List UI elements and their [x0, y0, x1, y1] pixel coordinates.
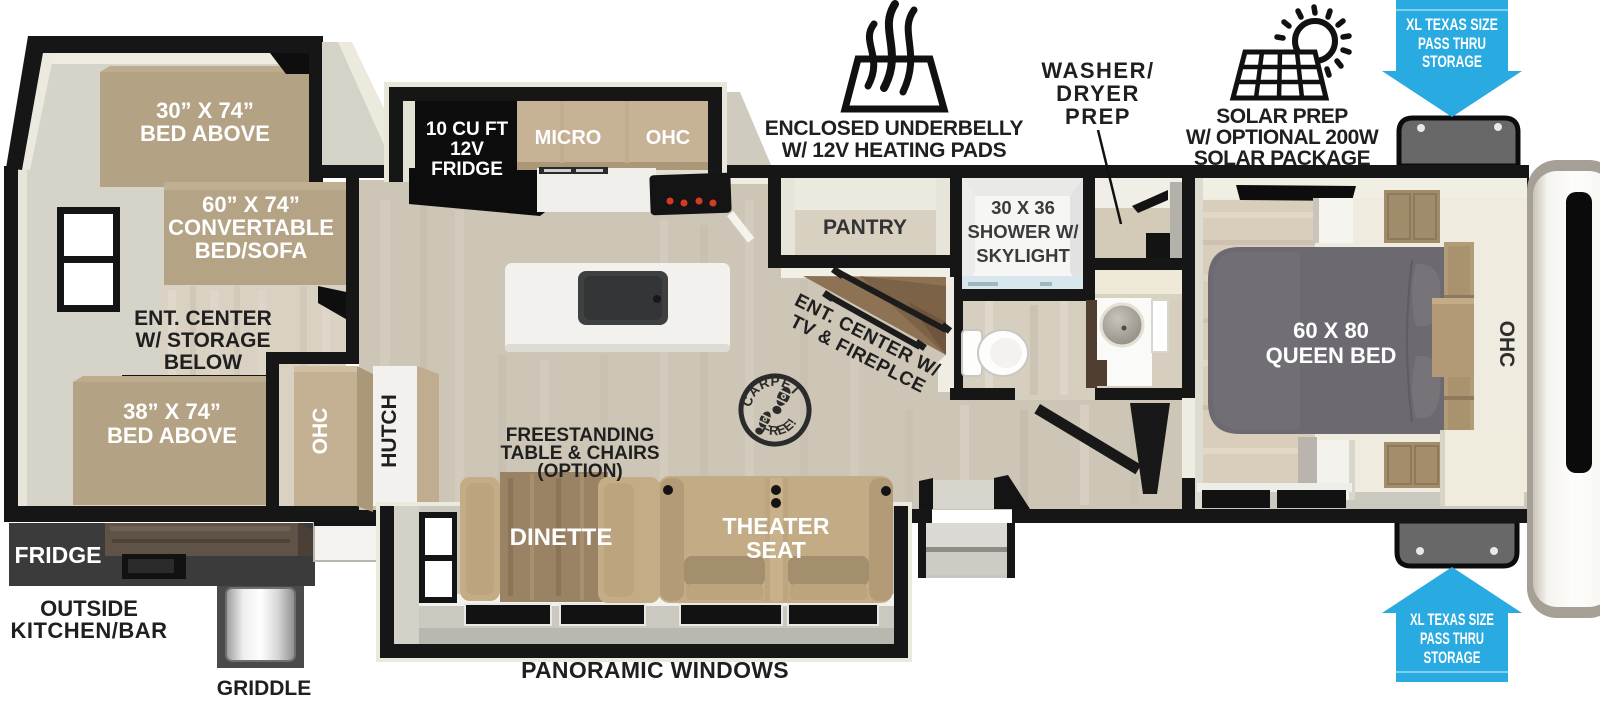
svg-text:SHOWER W/: SHOWER W/: [968, 221, 1079, 242]
svg-text:XL TEXAS SIZE: XL TEXAS SIZE: [1406, 15, 1498, 34]
svg-text:12V: 12V: [450, 139, 484, 160]
svg-text:PANORAMIC WINDOWS: PANORAMIC WINDOWS: [521, 657, 789, 683]
svg-text:38” X 74”: 38” X 74”: [123, 399, 221, 424]
svg-text:(OPTION): (OPTION): [537, 461, 623, 482]
svg-text:PANTRY: PANTRY: [823, 216, 907, 239]
svg-text:PASS THRU: PASS THRU: [1418, 34, 1486, 53]
svg-text:PASS THRU: PASS THRU: [1420, 629, 1484, 648]
svg-text:GRIDDLE: GRIDDLE: [217, 677, 312, 700]
svg-text:FRIDGE: FRIDGE: [431, 159, 503, 180]
svg-text:10 CU FT: 10 CU FT: [426, 119, 509, 140]
svg-text:W/ OPTIONAL 200W: W/ OPTIONAL 200W: [1186, 126, 1379, 149]
svg-text:OHC: OHC: [1495, 321, 1518, 368]
svg-text:OHC: OHC: [309, 408, 332, 455]
svg-text:30 X 36: 30 X 36: [991, 197, 1055, 218]
svg-text:30” X 74”: 30” X 74”: [156, 98, 254, 123]
svg-text:SKYLIGHT: SKYLIGHT: [976, 245, 1070, 266]
svg-text:W/ STORAGE: W/ STORAGE: [136, 329, 271, 352]
svg-text:60” X 74”: 60” X 74”: [202, 192, 300, 217]
svg-text:BED ABOVE: BED ABOVE: [140, 121, 270, 146]
svg-text:WASHER/: WASHER/: [1041, 58, 1154, 83]
svg-text:QUEEN BED: QUEEN BED: [1266, 343, 1397, 368]
svg-text:THEATER: THEATER: [723, 513, 830, 539]
svg-text:ENT. CENTER: ENT. CENTER: [134, 307, 272, 330]
svg-text:BED ABOVE: BED ABOVE: [107, 423, 237, 448]
svg-text:SOLAR PREP: SOLAR PREP: [1216, 105, 1348, 128]
svg-text:ENCLOSED UNDERBELLY: ENCLOSED UNDERBELLY: [765, 117, 1024, 140]
svg-text:SOLAR PACKAGE: SOLAR PACKAGE: [1194, 147, 1371, 170]
svg-text:CONVERTABLE: CONVERTABLE: [168, 215, 334, 240]
svg-text:SEAT: SEAT: [746, 537, 806, 563]
svg-text:FRIDGE: FRIDGE: [15, 542, 102, 568]
svg-text:STORAGE: STORAGE: [1424, 648, 1481, 667]
svg-text:DRYER: DRYER: [1056, 81, 1140, 106]
svg-text:MICRO: MICRO: [535, 127, 602, 149]
svg-text:PREP: PREP: [1065, 104, 1131, 129]
svg-text:XL TEXAS SIZE: XL TEXAS SIZE: [1410, 610, 1494, 629]
svg-text:DINETTE: DINETTE: [510, 524, 613, 551]
svg-text:BED/SOFA: BED/SOFA: [195, 238, 308, 263]
svg-text:W/ 12V HEATING PADS: W/ 12V HEATING PADS: [782, 139, 1007, 162]
svg-text:60 X 80: 60 X 80: [1293, 318, 1369, 343]
svg-text:STORAGE: STORAGE: [1422, 52, 1482, 71]
svg-text:KITCHEN/BAR: KITCHEN/BAR: [10, 618, 167, 643]
svg-text:BELOW: BELOW: [164, 351, 242, 374]
svg-text:HUTCH: HUTCH: [378, 394, 401, 468]
svg-text:OHC: OHC: [646, 127, 690, 149]
